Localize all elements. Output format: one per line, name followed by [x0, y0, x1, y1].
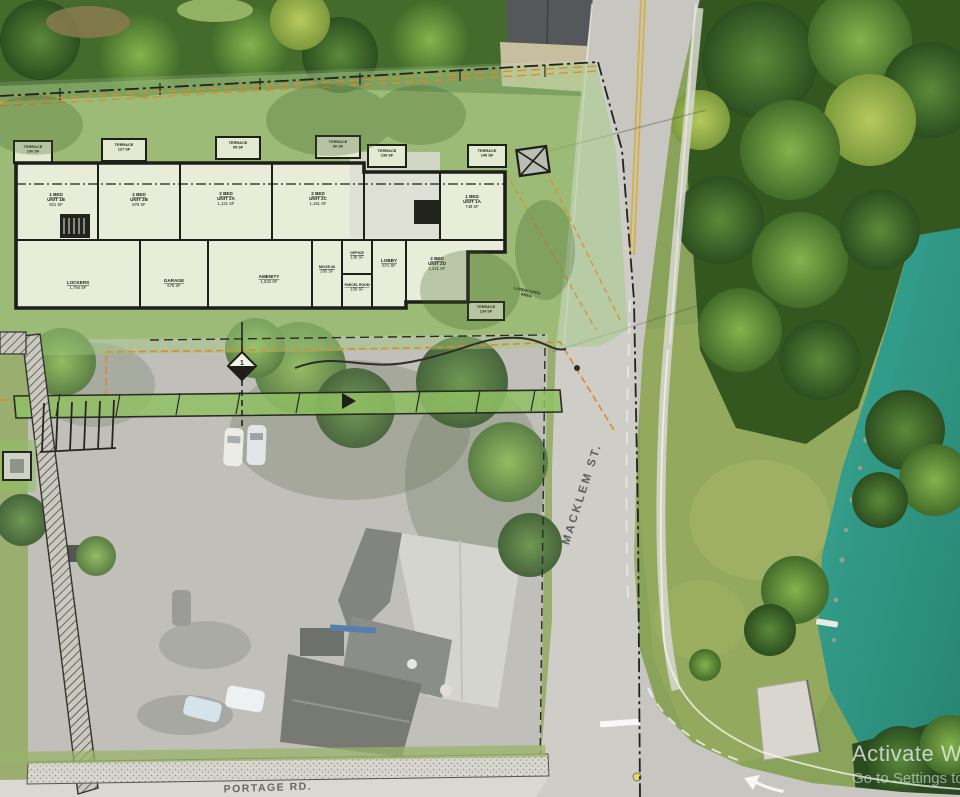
elevator-core	[414, 200, 440, 224]
aerial-site-plan-view: 1	[0, 0, 960, 797]
scene-canvas: 1	[0, 0, 960, 797]
site-plan-overlay: 1	[0, 60, 640, 797]
planter-inner	[10, 459, 24, 473]
utility-pole-symbol	[574, 365, 580, 371]
svg-text:LOCKERS1,794 SF: LOCKERS1,794 SF	[67, 280, 89, 290]
house-roof	[506, 0, 592, 46]
dirt-patch	[46, 6, 130, 38]
hatched-pad	[0, 332, 26, 354]
svg-text:AMENITY1,533 SF: AMENITY1,533 SF	[259, 274, 280, 284]
svg-text:MOVE-IN265 SF: MOVE-IN265 SF	[319, 265, 336, 274]
section-marker-number: 1	[240, 360, 244, 367]
svg-text:LOBBY571 SF: LOBBY571 SF	[381, 258, 397, 268]
equipment-pad-symbol	[516, 146, 549, 176]
svg-text:OFFICE138 SF: OFFICE138 SF	[350, 251, 364, 260]
